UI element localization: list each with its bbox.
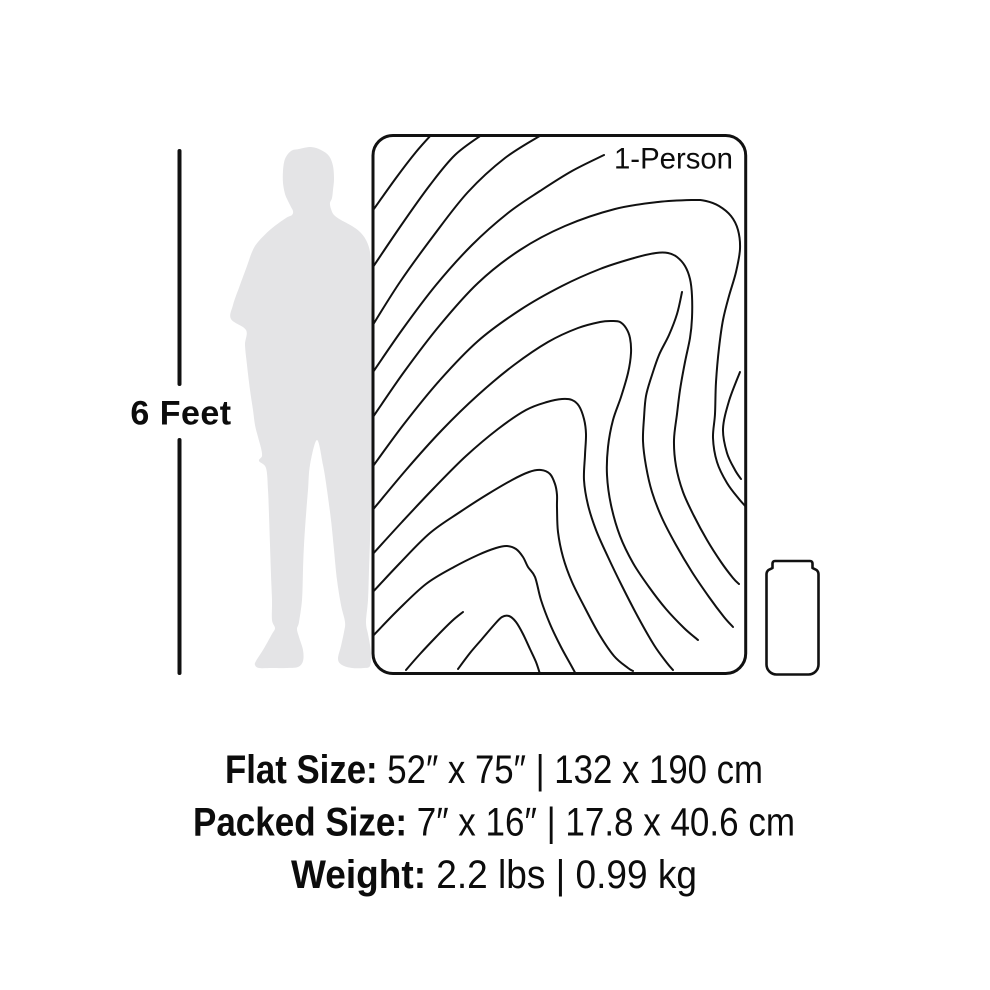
svg-text:1-Person: 1-Person: [614, 143, 733, 176]
svg-text:Weight: 2.2 lbs | 0.99 kg: Weight: 2.2 lbs | 0.99 kg: [291, 853, 697, 897]
svg-text:Flat Size: 52″ x 75″ | 132 x 1: Flat Size: 52″ x 75″ | 132 x 190 cm: [225, 748, 763, 792]
svg-text:Packed Size: 7″ x 16″ | 17.8 x: Packed Size: 7″ x 16″ | 17.8 x 40.6 cm: [193, 801, 795, 845]
svg-text:6 Feet: 6 Feet: [130, 395, 231, 433]
